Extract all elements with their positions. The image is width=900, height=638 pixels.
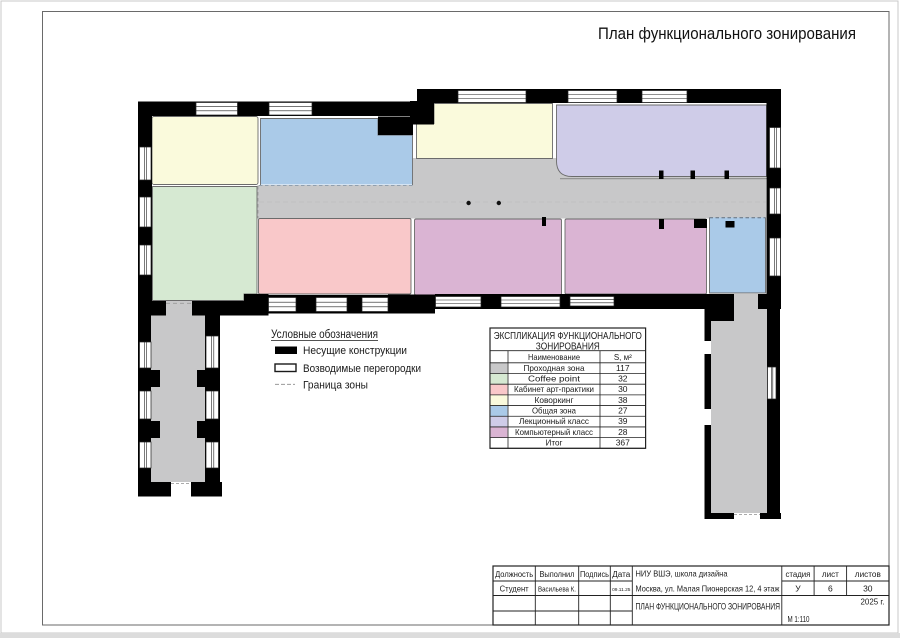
svg-text:09.11.25: 09.11.25 [612, 587, 631, 593]
svg-text:Coffee point: Coffee point [528, 373, 581, 383]
svg-text:Васильева К.: Васильева К. [538, 587, 576, 594]
svg-text:Студент: Студент [500, 585, 529, 594]
svg-text:Возводимые перегородки: Возводимые перегородки [303, 363, 421, 375]
svg-text:стадия: стадия [785, 570, 810, 579]
svg-text:ЭКСПЛИКАЦИЯ ФУНКЦИОНАЛЬНОГО: ЭКСПЛИКАЦИЯ ФУНКЦИОНАЛЬНОГО [494, 331, 642, 342]
svg-text:Общая зона: Общая зона [532, 406, 576, 416]
svg-text:Дата: Дата [612, 570, 631, 579]
svg-text:Наименование: Наименование [528, 352, 580, 362]
svg-text:367: 367 [616, 438, 630, 448]
svg-text:Лекционный класс: Лекционный класс [519, 416, 590, 426]
svg-text:30: 30 [863, 584, 873, 594]
svg-text:39: 39 [618, 416, 628, 426]
svg-text:Должность: Должность [495, 570, 533, 579]
svg-text:Коворкинг: Коворкинг [535, 395, 574, 405]
svg-text:2025 г.: 2025 г. [861, 597, 885, 607]
svg-text:S, м²: S, м² [614, 353, 632, 362]
svg-text:Проходная зона: Проходная зона [524, 363, 585, 373]
svg-text:лист: лист [822, 570, 839, 579]
svg-text:листов: листов [855, 570, 881, 579]
svg-text:38: 38 [618, 395, 628, 405]
svg-text:Кабинет арт-практики: Кабинет арт-практики [514, 384, 594, 394]
svg-text:НИУ ВШЭ, школа дизайна: НИУ ВШЭ, школа дизайна [636, 569, 728, 579]
svg-text:Подпись: Подпись [580, 570, 609, 579]
svg-text:6: 6 [828, 584, 833, 594]
svg-text:Условные обозначения: Условные обозначения [271, 329, 378, 341]
svg-text:30: 30 [618, 384, 628, 394]
svg-text:27: 27 [618, 406, 628, 416]
svg-text:117: 117 [616, 363, 630, 373]
svg-text:План функционального зонирован: План функционального зонирования [598, 24, 856, 43]
svg-text:Москва, ул. Малая Пионерская 1: Москва, ул. Малая Пионерская 12, 4 этаж [636, 584, 780, 594]
svg-text:ПЛАН ФУНКЦИОНАЛЬНОГО ЗОНИРОВАН: ПЛАН ФУНКЦИОНАЛЬНОГО ЗОНИРОВАНИЯ [636, 602, 781, 613]
svg-text:У: У [795, 584, 801, 594]
svg-text:Итог: Итог [546, 438, 563, 448]
svg-text:28: 28 [618, 427, 628, 437]
svg-text:М 1:110: М 1:110 [788, 614, 810, 624]
svg-text:Граница зоны: Граница зоны [303, 380, 368, 392]
svg-text:Компьютерный класс: Компьютерный класс [515, 427, 594, 437]
svg-text:32: 32 [618, 373, 628, 383]
svg-text:ЗОНИРОВАНИЯ: ЗОНИРОВАНИЯ [536, 342, 600, 353]
svg-text:Выполнил: Выполнил [540, 570, 575, 579]
svg-text:Несущие конструкции: Несущие конструкции [303, 345, 407, 357]
